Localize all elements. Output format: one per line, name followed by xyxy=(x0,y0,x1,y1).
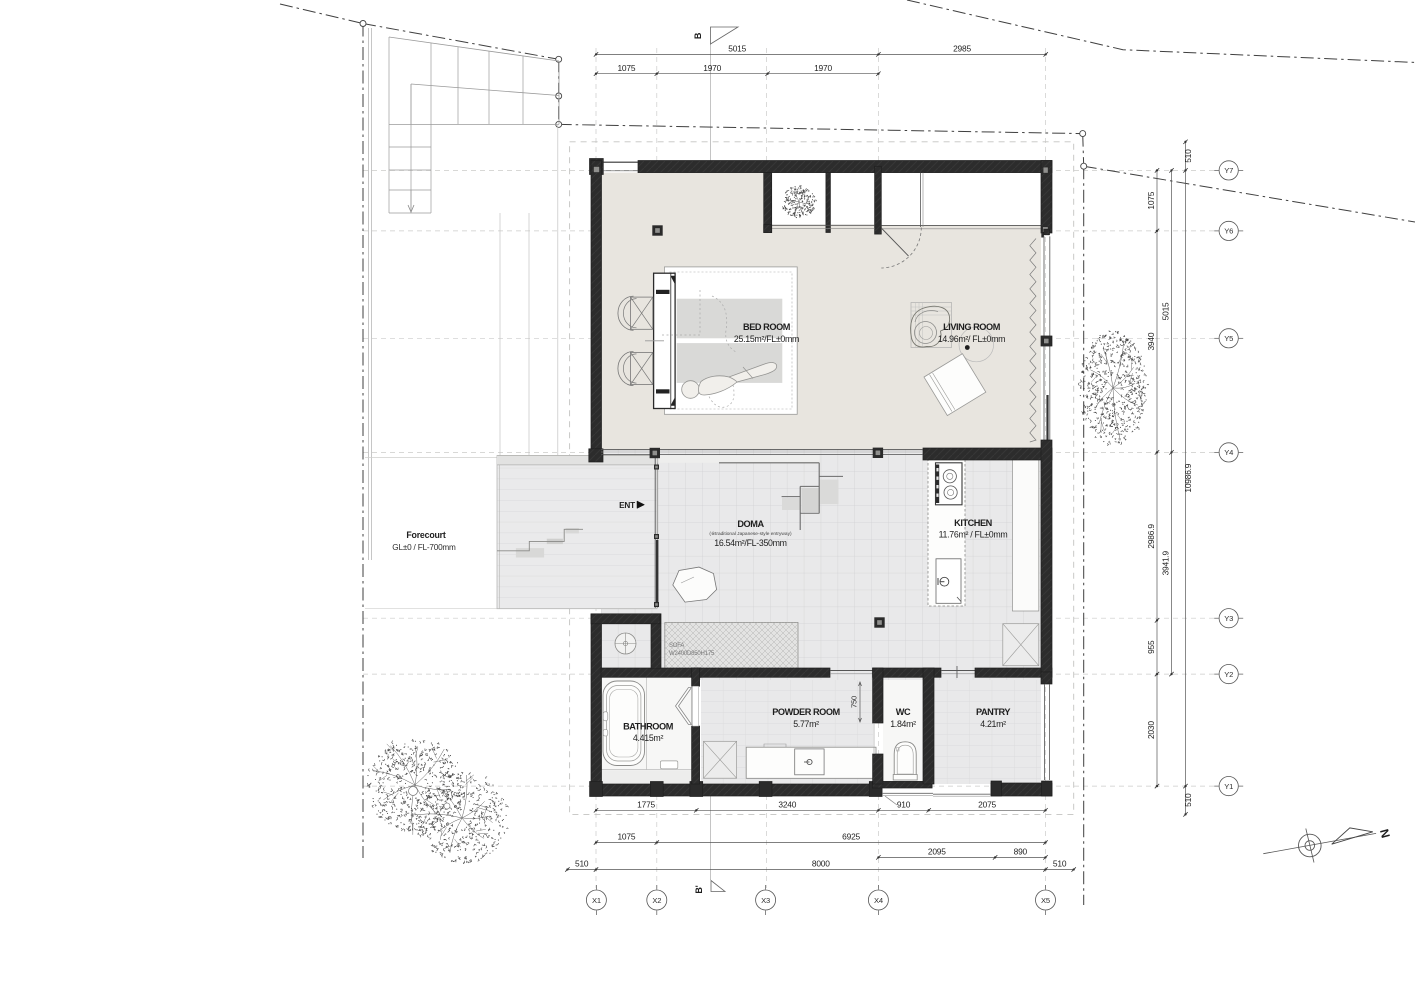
svg-text:4.21m²: 4.21m² xyxy=(980,719,1006,729)
svg-text:2095: 2095 xyxy=(928,847,946,857)
svg-text:25.15m²/FL±0mm: 25.15m²/FL±0mm xyxy=(734,334,799,344)
svg-text:5015: 5015 xyxy=(728,44,746,54)
svg-text:B: B xyxy=(693,32,703,39)
svg-text:3940: 3940 xyxy=(1146,332,1156,350)
svg-text:510: 510 xyxy=(1053,859,1067,869)
svg-text:510: 510 xyxy=(575,859,589,869)
svg-text:GL±0 / FL-700mm: GL±0 / FL-700mm xyxy=(392,543,456,552)
svg-text:Y6: Y6 xyxy=(1224,227,1233,236)
svg-text:Y3: Y3 xyxy=(1224,614,1233,623)
svg-text:1.84m²: 1.84m² xyxy=(890,719,916,729)
svg-text:X5: X5 xyxy=(1041,896,1050,905)
svg-text:14.96m²/ FL±0mm: 14.96m²/ FL±0mm xyxy=(938,334,1005,344)
svg-text:ENT: ENT xyxy=(619,501,635,510)
svg-text:Y2: Y2 xyxy=(1224,670,1233,679)
svg-text:1075: 1075 xyxy=(617,63,635,73)
svg-text:2986.9: 2986.9 xyxy=(1146,524,1156,549)
svg-text:X3: X3 xyxy=(761,896,770,905)
svg-text:X4: X4 xyxy=(874,896,883,905)
svg-text:6925: 6925 xyxy=(842,832,860,842)
svg-text:11.76m² / FL±0mm: 11.76m² / FL±0mm xyxy=(939,530,1008,540)
svg-text:Forecourt: Forecourt xyxy=(406,530,446,540)
svg-text:510: 510 xyxy=(1183,793,1193,807)
svg-text:PANTRY: PANTRY xyxy=(976,707,1010,717)
svg-text:510: 510 xyxy=(1183,149,1193,163)
svg-text:1775: 1775 xyxy=(637,800,655,810)
svg-text:4.415m²: 4.415m² xyxy=(633,733,664,743)
svg-text:1970: 1970 xyxy=(703,63,721,73)
svg-text:Y7: Y7 xyxy=(1224,166,1233,175)
svg-text:LIVING ROOM: LIVING ROOM xyxy=(943,322,1001,332)
svg-text:BATHROOM: BATHROOM xyxy=(623,722,674,732)
svg-text:5.77m²: 5.77m² xyxy=(793,719,819,729)
svg-text:955: 955 xyxy=(1146,640,1156,654)
svg-text:W2400D850H175: W2400D850H175 xyxy=(669,651,715,657)
svg-text:Y1: Y1 xyxy=(1224,782,1233,791)
svg-text:WC: WC xyxy=(896,707,911,717)
svg-text:910: 910 xyxy=(897,800,911,810)
svg-text:3941.9: 3941.9 xyxy=(1161,550,1171,575)
svg-text:Y4: Y4 xyxy=(1224,448,1233,457)
svg-text:SOFA: SOFA xyxy=(669,643,684,649)
svg-text:X2: X2 xyxy=(652,896,661,905)
svg-text:(※traditional Japanese-style e: (※traditional Japanese-style entryway) xyxy=(709,531,792,537)
svg-text:2030: 2030 xyxy=(1146,721,1156,739)
svg-text:890: 890 xyxy=(1014,847,1028,857)
svg-text:Y5: Y5 xyxy=(1224,334,1233,343)
svg-text:DOMA: DOMA xyxy=(737,519,764,529)
svg-text:2985: 2985 xyxy=(953,44,971,54)
svg-text:POWDER ROOM: POWDER ROOM xyxy=(772,707,840,717)
svg-text:BED ROOM: BED ROOM xyxy=(743,322,791,332)
svg-text:1075: 1075 xyxy=(1146,191,1156,209)
svg-text:5015: 5015 xyxy=(1161,302,1171,320)
svg-text:10986.9: 10986.9 xyxy=(1183,463,1193,492)
svg-text:16.54m²/FL-350mm: 16.54m²/FL-350mm xyxy=(714,538,786,548)
svg-text:B': B' xyxy=(694,885,704,893)
svg-text:KITCHEN: KITCHEN xyxy=(954,518,992,528)
svg-text:750: 750 xyxy=(850,696,859,708)
svg-text:1075: 1075 xyxy=(617,832,635,842)
svg-text:2075: 2075 xyxy=(978,800,996,810)
svg-text:1970: 1970 xyxy=(814,63,832,73)
svg-text:8000: 8000 xyxy=(812,859,830,869)
svg-text:X1: X1 xyxy=(592,896,601,905)
svg-text:3240: 3240 xyxy=(778,800,796,810)
